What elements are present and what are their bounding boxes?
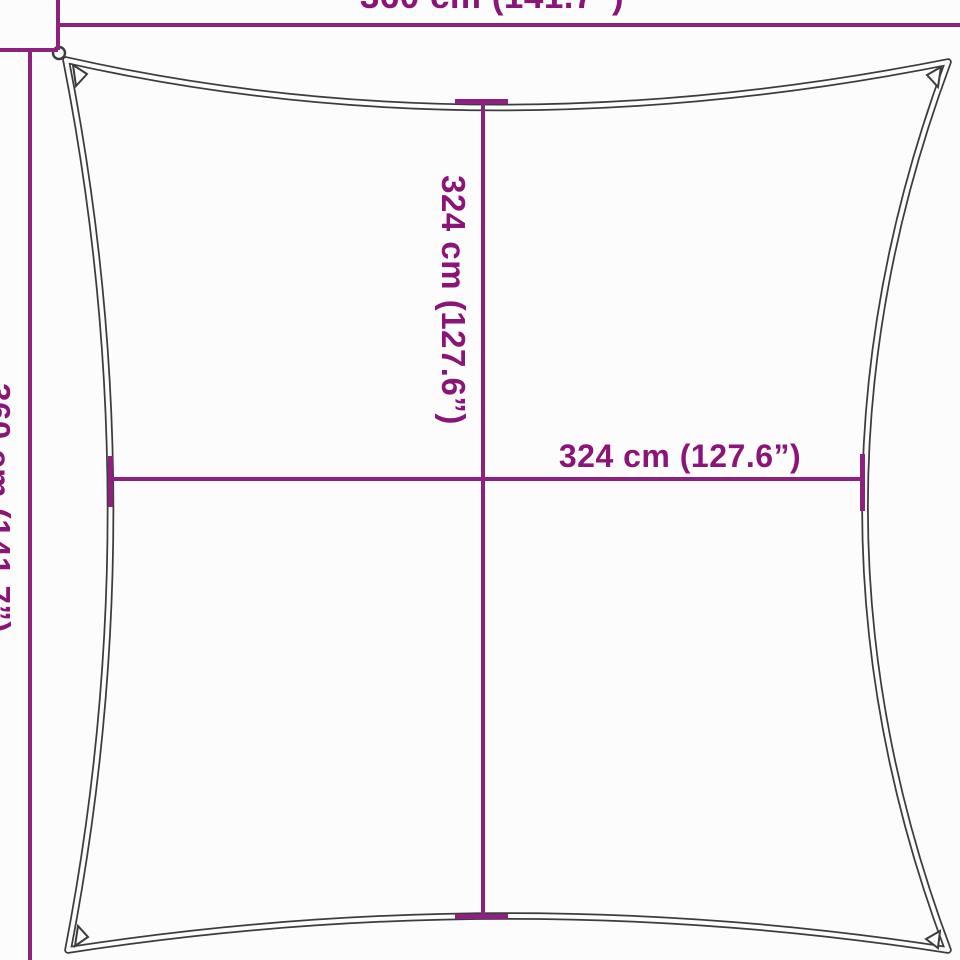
product-dimension-diagram: 360 cm (141.7”) 360 cm (141.7”) 324 cm (… bbox=[0, 0, 960, 960]
left-dimension-label: 360 cm (141.7”) bbox=[0, 358, 18, 658]
inner-height-line bbox=[481, 101, 485, 918]
inner-width-line bbox=[110, 477, 864, 481]
inner-height-label: 324 cm (127.6”) bbox=[435, 160, 471, 440]
inner-height-tick-bottom bbox=[455, 914, 508, 919]
top-dimension-line bbox=[56, 23, 960, 27]
sail-body bbox=[66, 60, 948, 950]
left-dimension-line bbox=[28, 48, 32, 960]
inner-width-tick-right bbox=[860, 454, 865, 511]
inner-width-tick-left bbox=[108, 456, 113, 507]
top-dimension-label: 360 cm (141.7”) bbox=[342, 0, 642, 17]
inner-width-label: 324 cm (127.6”) bbox=[530, 438, 830, 474]
